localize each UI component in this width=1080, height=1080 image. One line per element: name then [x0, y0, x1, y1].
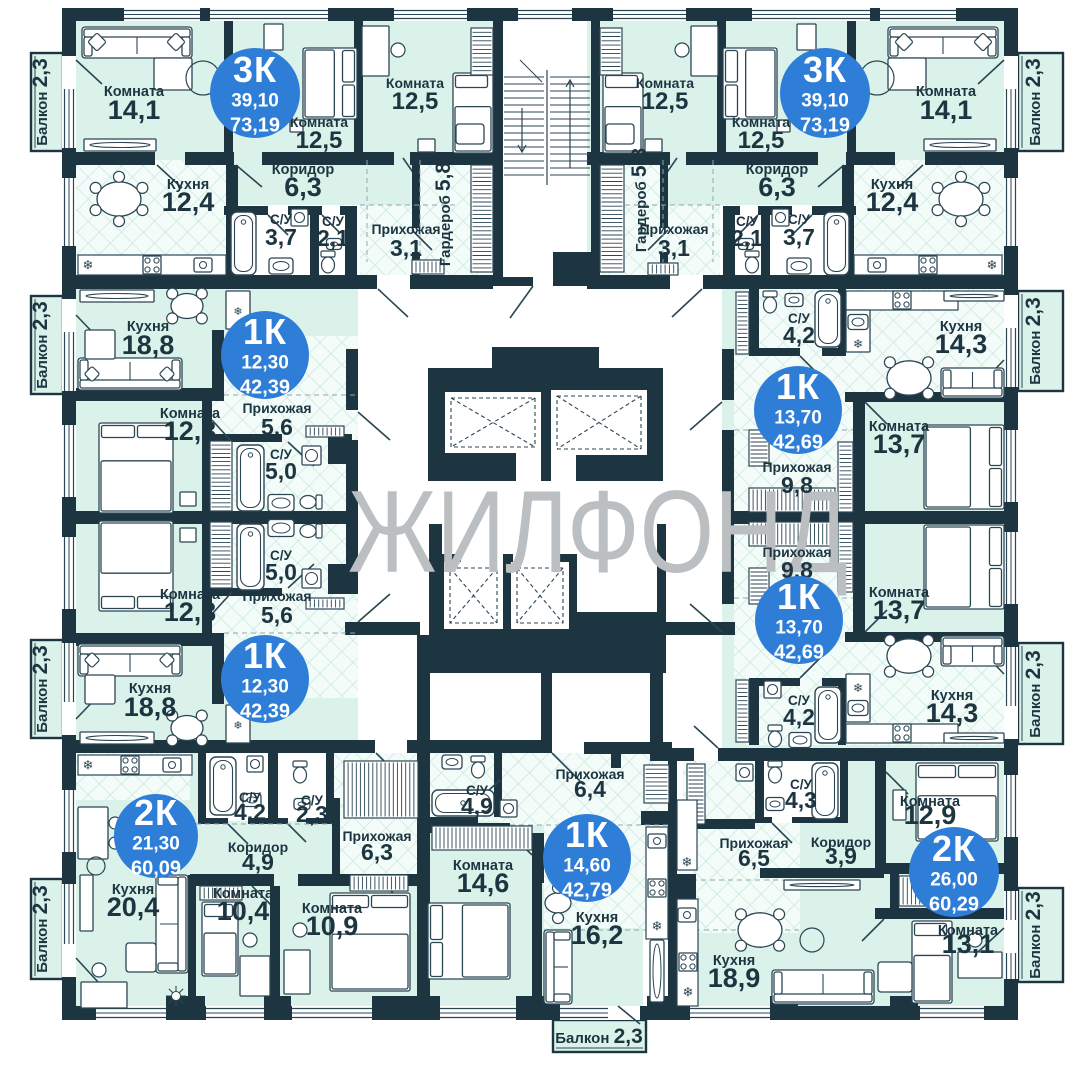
svg-text:1К: 1К — [565, 814, 609, 855]
svg-text:6,3: 6,3 — [284, 172, 322, 202]
svg-text:42,79: 42,79 — [562, 880, 612, 902]
svg-text:21,30: 21,30 — [132, 834, 180, 855]
svg-text:14,60: 14,60 — [563, 856, 611, 877]
svg-text:18,9: 18,9 — [708, 963, 761, 993]
svg-text:60,29: 60,29 — [929, 894, 979, 916]
svg-text:5,6: 5,6 — [261, 602, 293, 628]
svg-text:❄: ❄ — [853, 337, 863, 351]
svg-text:3,7: 3,7 — [265, 224, 297, 250]
svg-text:42,69: 42,69 — [773, 432, 823, 454]
svg-text:4,3: 4,3 — [785, 787, 817, 813]
svg-text:6,3: 6,3 — [361, 839, 393, 865]
svg-text:5,0: 5,0 — [265, 559, 297, 585]
svg-text:14,3: 14,3 — [926, 698, 979, 728]
svg-text:12,4: 12,4 — [866, 187, 919, 217]
svg-text:❄: ❄ — [233, 306, 242, 318]
svg-text:42,39: 42,39 — [240, 377, 290, 399]
svg-text:73,19: 73,19 — [800, 115, 850, 137]
svg-text:6,3: 6,3 — [758, 172, 796, 202]
svg-text:3,9: 3,9 — [825, 843, 857, 869]
svg-text:4,2: 4,2 — [783, 704, 815, 730]
svg-text:14,6: 14,6 — [457, 868, 510, 898]
svg-text:12,4: 12,4 — [162, 187, 215, 217]
svg-text:14,1: 14,1 — [920, 95, 973, 125]
svg-text:2,3: 2,3 — [296, 801, 328, 827]
svg-text:1К: 1К — [777, 576, 821, 617]
svg-text:18,8: 18,8 — [124, 692, 177, 722]
svg-text:73,19: 73,19 — [230, 115, 280, 137]
svg-text:1К: 1К — [243, 635, 287, 676]
svg-text:60,09: 60,09 — [131, 858, 181, 880]
svg-text:10,9: 10,9 — [306, 911, 359, 941]
svg-text:3К: 3К — [233, 49, 277, 90]
svg-text:2К: 2К — [134, 792, 178, 833]
svg-text:1К: 1К — [243, 311, 287, 352]
svg-text:13,7: 13,7 — [873, 429, 926, 459]
svg-text:42,69: 42,69 — [774, 642, 824, 664]
svg-text:12,5: 12,5 — [738, 127, 785, 154]
svg-text:5,0: 5,0 — [265, 458, 297, 484]
svg-text:13,70: 13,70 — [775, 618, 823, 639]
svg-text:13,1: 13,1 — [942, 929, 995, 959]
svg-text:12,5: 12,5 — [642, 88, 689, 115]
svg-text:12,3: 12,3 — [164, 416, 217, 446]
svg-text:3,7: 3,7 — [783, 224, 815, 250]
svg-text:42,39: 42,39 — [240, 701, 290, 723]
svg-text:13,70: 13,70 — [774, 408, 822, 429]
svg-text:ЖИЛФОНД: ЖИЛФОНД — [348, 466, 848, 597]
svg-text:14,1: 14,1 — [108, 95, 161, 125]
svg-text:16,2: 16,2 — [571, 920, 624, 950]
svg-text:2К: 2К — [932, 828, 976, 869]
svg-text:26,00: 26,00 — [930, 870, 978, 891]
svg-text:2,1: 2,1 — [731, 225, 763, 251]
svg-text:5,6: 5,6 — [261, 414, 293, 440]
svg-text:12,3: 12,3 — [164, 597, 217, 627]
svg-text:4,9: 4,9 — [461, 793, 493, 819]
svg-text:1К: 1К — [776, 366, 820, 407]
svg-text:39,10: 39,10 — [801, 91, 849, 112]
svg-text:39,10: 39,10 — [231, 91, 279, 112]
svg-text:❄: ❄ — [682, 855, 693, 870]
svg-text:3,1: 3,1 — [390, 235, 422, 261]
svg-text:6,5: 6,5 — [738, 845, 770, 871]
svg-text:10,4: 10,4 — [217, 896, 270, 926]
svg-text:3,1: 3,1 — [658, 235, 690, 261]
svg-text:❄: ❄ — [987, 258, 998, 273]
svg-text:20,4: 20,4 — [107, 892, 160, 922]
svg-text:12,30: 12,30 — [241, 677, 289, 698]
svg-text:14,3: 14,3 — [935, 329, 988, 359]
svg-text:4,9: 4,9 — [242, 849, 274, 875]
svg-text:❄: ❄ — [683, 985, 694, 1000]
svg-text:12,5: 12,5 — [392, 88, 439, 115]
svg-text:6,4: 6,4 — [574, 776, 606, 802]
svg-text:12,30: 12,30 — [241, 353, 289, 374]
svg-text:9,8: 9,8 — [781, 472, 813, 498]
svg-text:12,5: 12,5 — [296, 127, 343, 154]
svg-text:12,9: 12,9 — [904, 800, 957, 830]
svg-text:4,2: 4,2 — [783, 322, 815, 348]
svg-text:❄: ❄ — [83, 258, 94, 273]
svg-text:18,8: 18,8 — [122, 330, 175, 360]
svg-text:❄: ❄ — [83, 758, 94, 773]
svg-text:4,2: 4,2 — [234, 799, 266, 825]
svg-text:13,7: 13,7 — [873, 595, 926, 625]
svg-text:❄: ❄ — [853, 681, 863, 695]
svg-text:❄: ❄ — [652, 919, 663, 934]
svg-text:3К: 3К — [803, 49, 847, 90]
svg-text:2,1: 2,1 — [317, 225, 349, 251]
